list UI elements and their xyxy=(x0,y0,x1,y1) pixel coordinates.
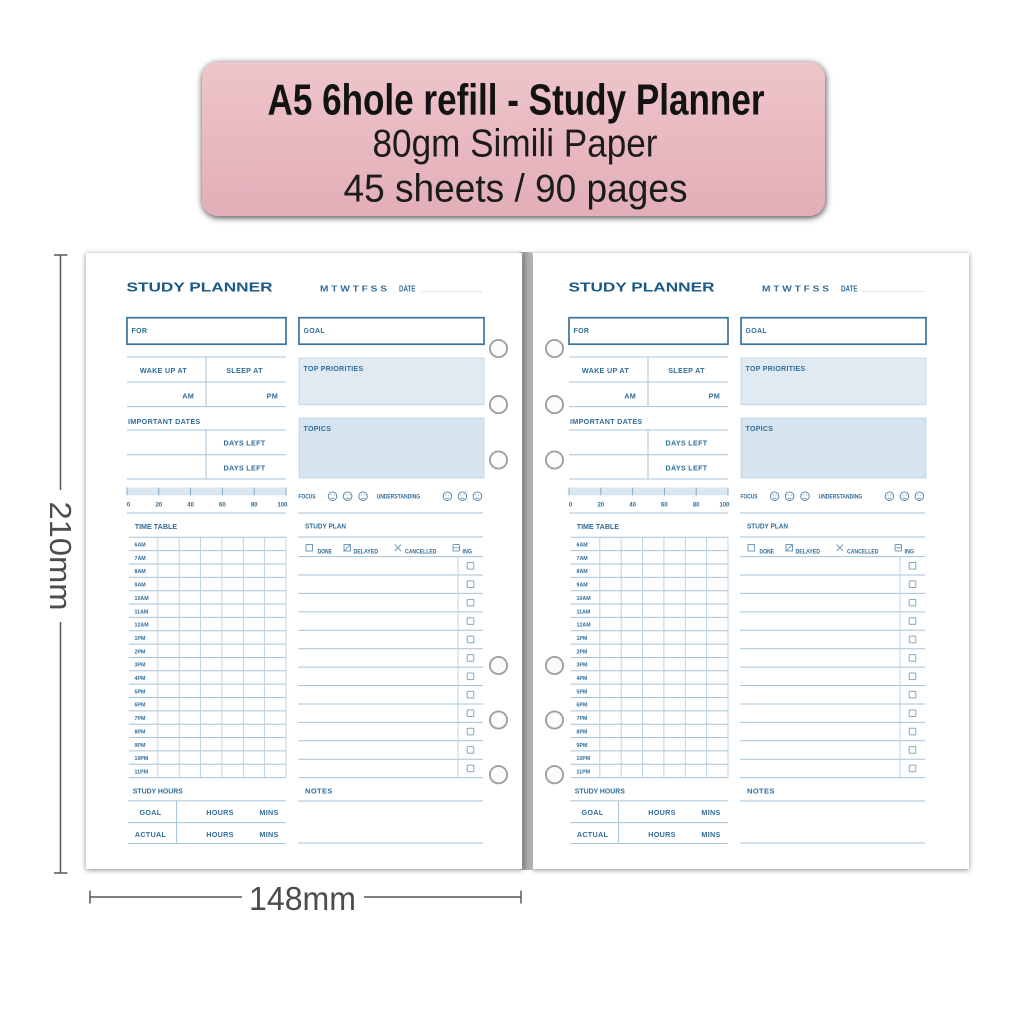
svg-text:7PM: 7PM xyxy=(135,716,146,722)
svg-text:SLEEP AT: SLEEP AT xyxy=(226,366,263,375)
svg-text:9PM: 9PM xyxy=(135,743,146,749)
svg-text:MINS: MINS xyxy=(259,808,278,817)
svg-text:AM: AM xyxy=(624,392,636,401)
svg-text:ING: ING xyxy=(905,548,915,555)
svg-text:DONE: DONE xyxy=(318,548,333,555)
svg-text:HOURS: HOURS xyxy=(648,830,675,839)
svg-text:3PM: 3PM xyxy=(135,663,146,669)
svg-text:8AM: 8AM xyxy=(135,569,147,575)
svg-text:20: 20 xyxy=(597,503,604,509)
svg-text:1PM: 1PM xyxy=(135,636,146,642)
svg-text:100: 100 xyxy=(277,503,288,509)
svg-text:10PM: 10PM xyxy=(577,756,591,762)
svg-text:DAYS LEFT: DAYS LEFT xyxy=(666,439,708,448)
svg-text:TOPICS: TOPICS xyxy=(304,426,332,433)
svg-text:45 sheets / 90 pages: 45 sheets / 90 pages xyxy=(344,168,688,211)
svg-text:9AM: 9AM xyxy=(577,583,589,589)
svg-text:ACTUAL: ACTUAL xyxy=(577,830,609,839)
svg-text:80gm Simili Paper: 80gm Simili Paper xyxy=(373,123,658,166)
svg-text:M T W T F S S: M T W T F S S xyxy=(762,285,830,294)
svg-text:CANCELLED: CANCELLED xyxy=(847,548,879,555)
svg-text:DATE: DATE xyxy=(841,285,858,294)
svg-text:ING: ING xyxy=(463,548,473,555)
svg-text:11PM: 11PM xyxy=(135,769,149,775)
svg-text:STUDY HOURS: STUDY HOURS xyxy=(133,786,183,795)
svg-text:MINS: MINS xyxy=(701,830,720,839)
svg-text:UNDERSTANDING: UNDERSTANDING xyxy=(819,494,863,501)
svg-text:NOTES: NOTES xyxy=(747,787,775,796)
svg-text:DATE: DATE xyxy=(399,285,416,294)
svg-text:5PM: 5PM xyxy=(135,689,146,695)
svg-text:80: 80 xyxy=(693,503,700,509)
svg-text:STUDY PLANNER: STUDY PLANNER xyxy=(127,281,273,295)
svg-text:FOR: FOR xyxy=(132,328,148,335)
svg-text:CANCELLED: CANCELLED xyxy=(405,548,437,555)
svg-text:6PM: 6PM xyxy=(135,703,146,709)
svg-text:AM: AM xyxy=(182,392,194,401)
svg-text:FOCUS: FOCUS xyxy=(299,494,316,501)
svg-text:TIME TABLE: TIME TABLE xyxy=(135,522,178,531)
svg-text:20: 20 xyxy=(155,503,162,509)
svg-text:40: 40 xyxy=(187,503,194,509)
svg-text:STUDY PLAN: STUDY PLAN xyxy=(305,522,346,531)
svg-text:GOAL: GOAL xyxy=(582,808,604,817)
svg-text:7PM: 7PM xyxy=(577,716,588,722)
svg-text:UNDERSTANDING: UNDERSTANDING xyxy=(377,494,421,501)
svg-text:11AM: 11AM xyxy=(577,609,591,615)
svg-text:9PM: 9PM xyxy=(577,743,588,749)
svg-text:100: 100 xyxy=(719,503,730,509)
svg-text:DAYS LEFT: DAYS LEFT xyxy=(666,464,708,473)
svg-text:11AM: 11AM xyxy=(135,609,149,615)
svg-text:DELAYED: DELAYED xyxy=(796,548,821,555)
svg-text:WAKE UP AT: WAKE UP AT xyxy=(140,366,187,375)
svg-text:9AM: 9AM xyxy=(135,583,147,589)
svg-text:60: 60 xyxy=(219,503,226,509)
svg-text:FOCUS: FOCUS xyxy=(741,494,758,501)
svg-text:MINS: MINS xyxy=(259,830,278,839)
svg-text:2PM: 2PM xyxy=(577,649,588,655)
svg-text:6AM: 6AM xyxy=(577,543,589,549)
svg-text:TOPICS: TOPICS xyxy=(746,426,774,433)
svg-text:2PM: 2PM xyxy=(135,649,146,655)
svg-text:12AM: 12AM xyxy=(577,623,592,629)
svg-text:1PM: 1PM xyxy=(577,636,588,642)
svg-text:10AM: 10AM xyxy=(135,596,150,602)
svg-text:HOURS: HOURS xyxy=(206,830,233,839)
svg-text:DAYS LEFT: DAYS LEFT xyxy=(224,439,266,448)
svg-text:40: 40 xyxy=(629,503,636,509)
svg-text:210mm: 210mm xyxy=(43,502,78,611)
svg-text:148mm: 148mm xyxy=(249,880,356,917)
svg-text:10PM: 10PM xyxy=(135,756,149,762)
svg-text:11PM: 11PM xyxy=(577,769,591,775)
svg-text:4PM: 4PM xyxy=(577,676,588,682)
svg-text:GOAL: GOAL xyxy=(304,328,326,335)
svg-text:5PM: 5PM xyxy=(577,689,588,695)
svg-text:STUDY PLAN: STUDY PLAN xyxy=(747,522,788,531)
svg-text:12AM: 12AM xyxy=(135,623,150,629)
svg-text:8PM: 8PM xyxy=(577,729,588,735)
svg-text:DELAYED: DELAYED xyxy=(354,548,379,555)
svg-text:8PM: 8PM xyxy=(135,729,146,735)
svg-text:10AM: 10AM xyxy=(577,596,592,602)
svg-text:FOR: FOR xyxy=(574,328,590,335)
svg-text:TOP PRIORITIES: TOP PRIORITIES xyxy=(746,366,806,373)
svg-text:PM: PM xyxy=(267,392,278,401)
svg-text:8AM: 8AM xyxy=(577,569,589,575)
svg-text:A5 6hole refill - Study Planne: A5 6hole refill - Study Planner xyxy=(268,76,765,125)
svg-text:4PM: 4PM xyxy=(135,676,146,682)
svg-text:60: 60 xyxy=(661,503,668,509)
svg-text:7AM: 7AM xyxy=(135,556,147,562)
svg-text:IMPORTANT DATES: IMPORTANT DATES xyxy=(570,417,643,426)
svg-text:IMPORTANT DATES: IMPORTANT DATES xyxy=(128,417,201,426)
svg-text:DAYS LEFT: DAYS LEFT xyxy=(224,464,266,473)
svg-text:80: 80 xyxy=(251,503,258,509)
svg-text:GOAL: GOAL xyxy=(140,808,162,817)
svg-text:6AM: 6AM xyxy=(135,543,147,549)
svg-text:TOP PRIORITIES: TOP PRIORITIES xyxy=(304,366,364,373)
svg-text:6PM: 6PM xyxy=(577,703,588,709)
svg-text:DONE: DONE xyxy=(760,548,775,555)
svg-text:NOTES: NOTES xyxy=(305,787,333,796)
svg-text:STUDY PLANNER: STUDY PLANNER xyxy=(569,281,715,295)
svg-text:PM: PM xyxy=(709,392,720,401)
svg-text:HOURS: HOURS xyxy=(206,808,233,817)
svg-text:STUDY HOURS: STUDY HOURS xyxy=(575,786,625,795)
svg-text:HOURS: HOURS xyxy=(648,808,675,817)
svg-text:WAKE UP AT: WAKE UP AT xyxy=(582,366,629,375)
svg-text:GOAL: GOAL xyxy=(746,328,768,335)
svg-text:SLEEP AT: SLEEP AT xyxy=(668,366,705,375)
svg-text:TIME TABLE: TIME TABLE xyxy=(577,522,620,531)
svg-text:MINS: MINS xyxy=(701,808,720,817)
svg-text:7AM: 7AM xyxy=(577,556,589,562)
svg-text:ACTUAL: ACTUAL xyxy=(135,830,167,839)
svg-text:3PM: 3PM xyxy=(577,663,588,669)
svg-text:M T W T F S S: M T W T F S S xyxy=(320,285,388,294)
